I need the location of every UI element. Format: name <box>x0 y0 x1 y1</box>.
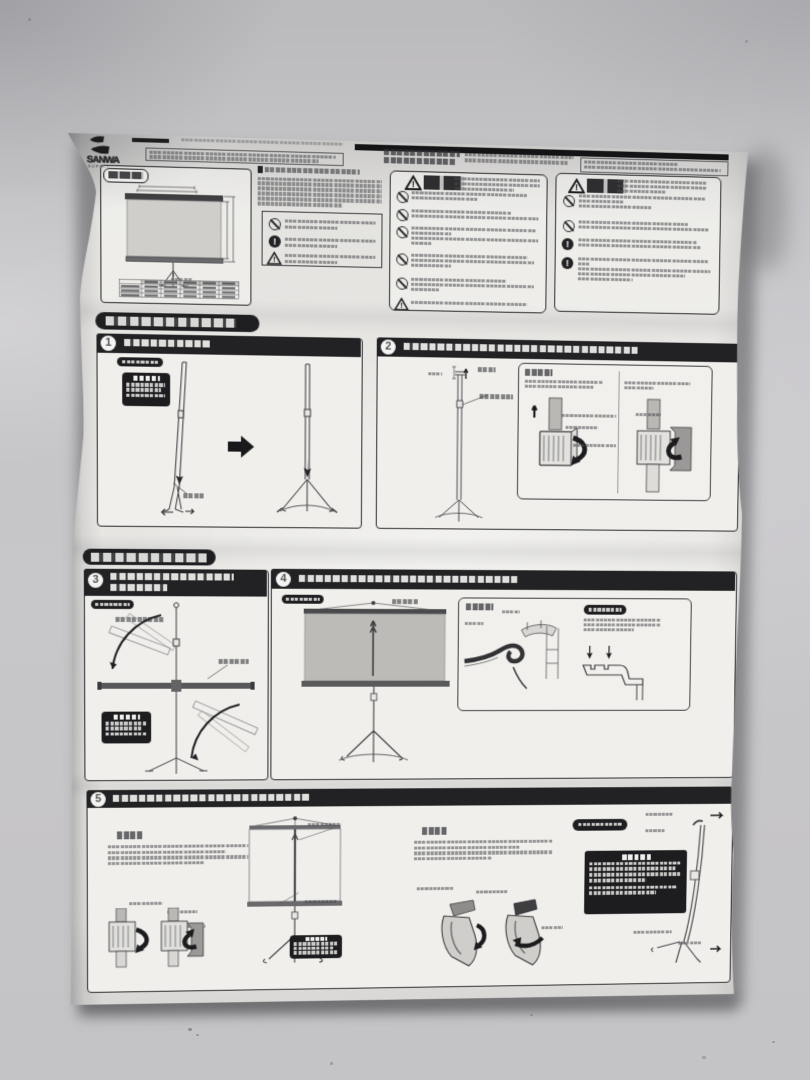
svg-text:!: ! <box>273 254 276 264</box>
svg-text:!: ! <box>575 183 578 193</box>
svg-text:!: ! <box>412 180 415 190</box>
svg-text:!: ! <box>400 300 403 310</box>
